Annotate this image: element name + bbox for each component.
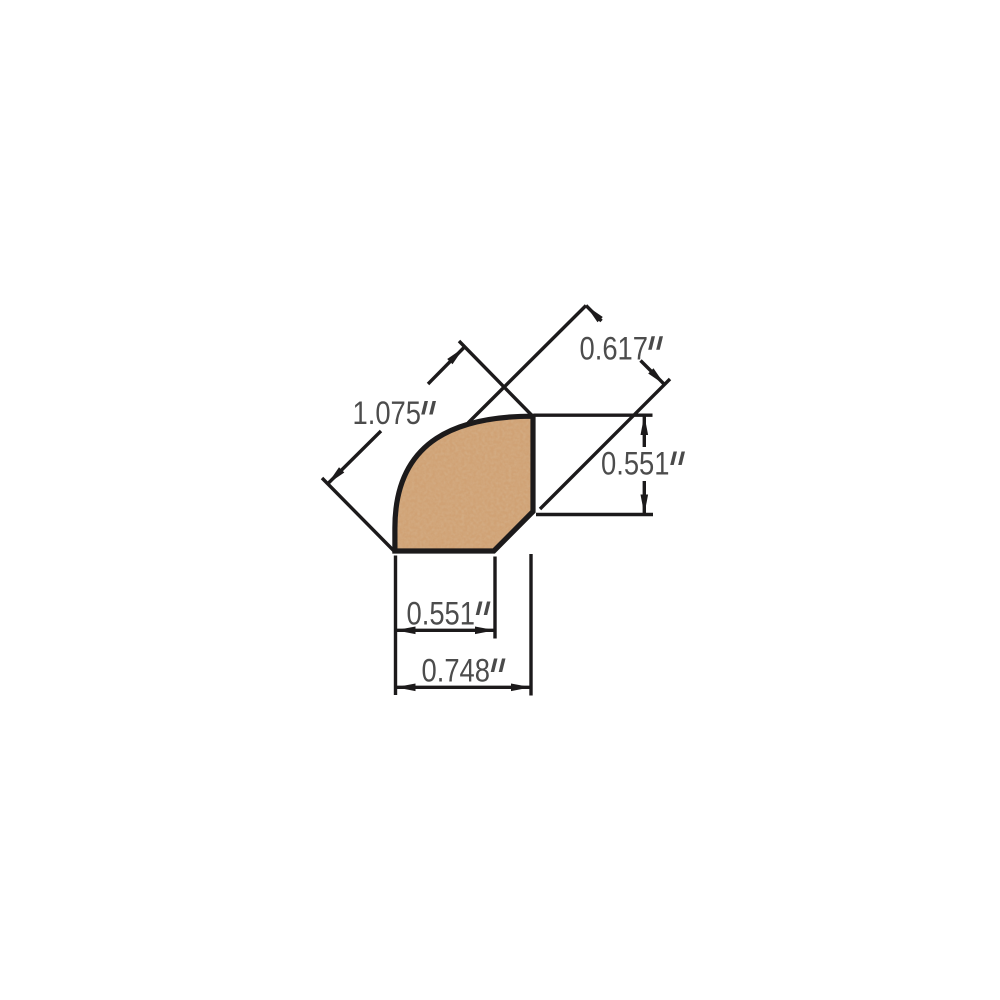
svg-text:0.748: 0.748 — [422, 653, 491, 689]
svg-text:0.551: 0.551 — [601, 446, 670, 482]
svg-text:0.551: 0.551 — [407, 596, 476, 632]
svg-text:1.075: 1.075 — [353, 395, 422, 431]
svg-text:0.617: 0.617 — [580, 331, 649, 367]
